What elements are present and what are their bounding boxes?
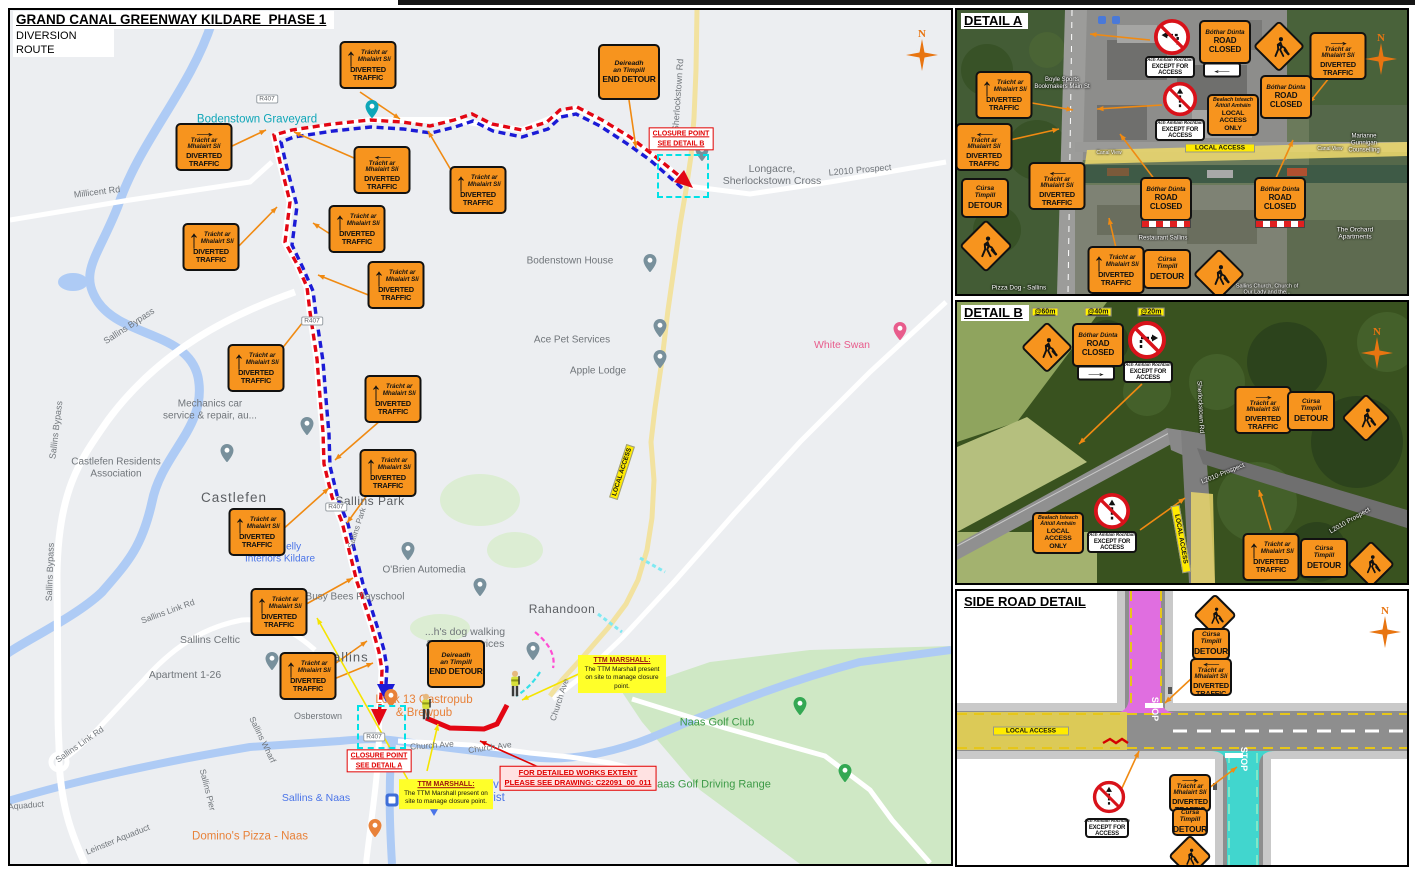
compass-icon: N — [1364, 31, 1398, 77]
diverted-sign: ↑Trácht ar Mhalairt SlíDIVERTED TRAFFIC — [976, 71, 1033, 119]
aerial-label: Sherlockstown Rd — [1195, 381, 1205, 434]
left-arrow-icon: ← — [1198, 657, 1225, 668]
up-arrow-icon: ↑ — [345, 48, 357, 67]
end-detour-sign: Deireadh an TimpillEND DETOUR — [598, 44, 660, 100]
left-arrow-icon: ← — [971, 127, 998, 138]
place-label: Busy Bees Playschool — [306, 591, 405, 603]
local-access-only-sign: Bealach Isteach Áitiúil AmháinLOCAL ACCE… — [1207, 94, 1259, 136]
roadworks-sign — [1201, 256, 1234, 289]
ttm-marshal-icon — [508, 670, 523, 698]
closure-point-b-box — [657, 154, 709, 198]
local-access-only-sign: Bealach Isteach Áitiúil AmháinLOCAL ACCE… — [1032, 512, 1084, 554]
right-arrow-icon: → — [1250, 390, 1277, 401]
closure-point-a-box — [357, 705, 406, 749]
place-label: Sallins Link Rd — [140, 598, 196, 626]
diverted-sign: ↑Trácht ar Mhalairt SlíDIVERTED TRAFFIC — [1243, 533, 1300, 581]
distance-label: @40m — [1085, 308, 1112, 317]
diverted-sign: ↑Trácht ar Mhalairt SlíDIVERTED TRAFFIC — [450, 166, 507, 214]
compass-icon: N — [1360, 325, 1394, 371]
except-for-access-sign: Ach Amháin RochtainEXCEPT FOR ACCESS — [1145, 56, 1195, 78]
place-label: Sallins Wharf — [247, 715, 278, 764]
traffic-management-drawing: GRAND CANAL GREENWAY KILDARE_PHASE 1 DIV… — [0, 0, 1415, 874]
place-label: Church Ave — [549, 678, 572, 723]
ttm-marshall-note: TTM MARSHALL:The TTM Marshall present on… — [399, 779, 493, 809]
roadworks-sign — [1348, 400, 1379, 431]
roadworks-icon — [1168, 834, 1211, 867]
roadworks-sign — [1261, 28, 1294, 61]
detour-sign: Cúrsa TimpillDETOUR — [1143, 249, 1191, 289]
up-arrow-icon: ↑ — [188, 230, 200, 249]
up-arrow-icon: ↑ — [234, 515, 246, 534]
local-access-label: LOCAL ACCESS — [609, 444, 635, 500]
place-label: Church Ave — [410, 740, 454, 753]
local-access-label: LOCAL ACCESS — [1171, 505, 1192, 574]
end-detour-sign: Deireadh an TimpillEND DETOUR — [427, 640, 485, 688]
barrier-icon — [1141, 220, 1191, 228]
roadworks-sign — [967, 227, 1001, 261]
diverted-sign: ↑Trácht ar Mhalairt SlíDIVERTED TRAFFIC — [251, 588, 308, 636]
ttm-marshal-icon — [419, 693, 434, 721]
roadworks-sign — [1029, 329, 1062, 362]
detour-sign: Cúrsa TimpillDETOUR — [961, 178, 1009, 218]
detail-a-panel: DETAIL A Boyle Sports Bookmakers Main St… — [955, 8, 1409, 296]
roadworks-icon — [959, 219, 1013, 273]
no-left-turn-sign — [1153, 18, 1191, 56]
road-badge: R407 — [256, 95, 278, 104]
roadworks-icon — [1347, 540, 1395, 585]
aerial-label: Canal View — [1317, 147, 1342, 153]
place-label: Longacre, Sherlockstown Cross — [723, 163, 822, 187]
side-road-panel: SIDE ROAD DETAIL Cúrsa TimpillDETOUR←Trá… — [955, 589, 1409, 867]
side-road-title: SIDE ROAD DETAIL — [961, 594, 1092, 610]
place-label: Millicent Rd — [73, 184, 120, 200]
place-label: Sherlockstown Rd — [670, 58, 685, 131]
place-label: Sallins Bypass — [47, 400, 64, 459]
roadworks-icon — [1341, 393, 1391, 443]
one-way-sign: → — [1077, 366, 1115, 381]
title-block: GRAND CANAL GREENWAY KILDARE_PHASE 1 DIV… — [13, 11, 334, 57]
aerial-label: The Orchard Apartments — [1329, 227, 1381, 242]
place-label: Apartment 1-26 — [149, 669, 221, 681]
aerial-label: Canal View — [1096, 151, 1121, 157]
detail-b-panel: DETAIL B Sherlockstown RdL2010-ProspectL… — [955, 300, 1409, 585]
main-map-panel: GRAND CANAL GREENWAY KILDARE_PHASE 1 DIV… — [8, 8, 953, 866]
diverted-sign: →Trácht ar Mhalairt SlíDIVERTED TRAFFIC — [1235, 386, 1292, 434]
place-label: Rahandoon — [529, 603, 596, 617]
diverted-sign: ↑Trácht ar Mhalairt SlíDIVERTED TRAFFIC — [183, 223, 240, 271]
right-arrow-icon: → — [1325, 36, 1352, 47]
left-arrow-icon: ← — [369, 150, 396, 161]
map-pin — [644, 254, 657, 272]
local-access-label: LOCAL ACCESS — [993, 727, 1069, 736]
except-for-access-sign: Ach Amháin RochtainEXCEPT FOR ACCESS — [1087, 531, 1137, 553]
except-for-access-sign: Ach Amháin RochtainEXCEPT FOR ACCESS — [1155, 119, 1205, 141]
up-arrow-icon: ↑ — [233, 351, 245, 370]
up-arrow-icon: ↑ — [285, 659, 297, 678]
map-pin — [221, 444, 234, 462]
aerial-label: L2010-Prospect — [1200, 462, 1245, 486]
diverted-sign: ↑Trácht ar Mhalairt SlíDIVERTED TRAFFIC — [360, 449, 417, 497]
place-label: Naas Golf Driving Range — [649, 779, 771, 792]
road-badge: R407 — [363, 733, 385, 742]
diverted-sign: ↑Trácht ar Mhalairt SlíDIVERTED TRAFFIC — [329, 205, 386, 253]
one-way-sign: ← — [1203, 63, 1241, 78]
place-label: Sallins Link Rd — [54, 725, 106, 765]
map-pin — [402, 542, 415, 560]
roadworks-icon — [1021, 321, 1073, 373]
no-right-turn-sign — [1127, 320, 1167, 360]
diverted-sign: ↑Trácht ar Mhalairt SlíDIVERTED TRAFFIC — [365, 375, 422, 423]
map-pin — [839, 764, 852, 782]
place-label: Sallins Pier — [197, 768, 217, 812]
map-pin — [301, 417, 314, 435]
diverted-sign: →Trácht ar Mhalairt SlíDIVERTED TRAFFIC — [176, 123, 233, 171]
map-pin — [894, 322, 907, 340]
detour-sign: Cúrsa TimpillDETOUR — [1287, 391, 1335, 431]
ttm-marshall-note: TTM MARSHALL:The TTM Marshall present on… — [578, 655, 666, 693]
roadworks-sign — [1354, 547, 1384, 577]
ttm-note-title: TTM MARSHALL: — [402, 781, 490, 790]
road-closed-sign: Bóthar DúntaROAD CLOSED — [1199, 20, 1251, 64]
place-label: Castlefen Residents Association — [71, 457, 161, 480]
no-straight-ahead-sign — [1093, 492, 1131, 530]
diverted-sign: ↑Trácht ar Mhalairt SlíDIVERTED TRAFFIC — [229, 508, 286, 556]
place-label: Mechanics car service & repair, au... — [163, 399, 257, 422]
diverted-sign: ↑Trácht ar Mhalairt SlíDIVERTED TRAFFIC — [280, 652, 337, 700]
road-badge: R407 — [301, 317, 323, 326]
place-label: Sallins Bypass — [102, 306, 157, 347]
road-closed-sign: Bóthar DúntaROAD CLOSED — [1260, 75, 1312, 119]
up-arrow-icon: ↑ — [370, 382, 382, 401]
detail-b-title: DETAIL B — [961, 305, 1029, 321]
place-label: Ace Pet Services — [534, 334, 610, 346]
detour-sign: Cúrsa TimpillDETOUR — [1300, 538, 1348, 578]
svg-text:N: N — [1373, 326, 1381, 338]
works-extent-note: FOR DETAILED WORKS EXTENT PLEASE SEE DRA… — [500, 766, 657, 791]
road-closed-sign: Bóthar DúntaROAD CLOSED — [1254, 177, 1306, 221]
local-access-label: LOCAL ACCESS — [1185, 144, 1255, 153]
svg-text:N: N — [1381, 605, 1389, 617]
place-label: Sallins Bypass — [44, 543, 56, 602]
no-straight-ahead-sign — [1162, 81, 1198, 117]
aerial-label: Sallins Church, Church of Our Lady and t… — [1236, 284, 1298, 296]
ttm-note-body: The TTM Marshall present on site to mana… — [404, 790, 488, 805]
diverted-sign: →Trácht ar Mhalairt SlíDIVERTED TRAFFIC — [1310, 32, 1367, 80]
place-label: L2010 Prospect — [828, 162, 892, 178]
up-arrow-icon: ↑ — [256, 595, 268, 614]
right-arrow-icon: → — [1177, 773, 1204, 784]
right-arrow-icon: → — [191, 127, 218, 138]
train-station-icon — [386, 794, 399, 807]
svg-text:N: N — [918, 28, 926, 40]
aerial-label: Marianne Gunnigan Counselling — [1343, 134, 1386, 155]
drawing-title: GRAND CANAL GREENWAY KILDARE_PHASE 1 — [13, 11, 334, 29]
map-pin — [369, 819, 382, 837]
aerial-label: Restaurant Sallins — [1139, 236, 1188, 243]
map-pin — [527, 642, 540, 660]
sheet-edge — [398, 0, 1415, 5]
no-straight-ahead-sign — [1092, 780, 1126, 814]
diverted-sign: ↑Trácht ar Mhalairt SlíDIVERTED TRAFFIC — [228, 344, 285, 392]
compass-icon: N — [1368, 604, 1402, 650]
map-pin — [654, 350, 667, 368]
diverted-sign: →Trácht ar Mhalairt SlíDIVERTED TRAFFIC — [1169, 774, 1211, 812]
map-pin — [654, 319, 667, 337]
diverted-sign: ←Trácht ar Mhalairt SlíDIVERTED TRAFFIC — [354, 146, 411, 194]
closure-point-b-label: CLOSURE POINT SEE DETAIL B — [649, 127, 714, 150]
aerial-label: L2010 Prospect — [1328, 506, 1371, 535]
roadworks-sign — [1175, 841, 1202, 867]
stop-marking: STOP — [1239, 747, 1249, 771]
svg-text:N: N — [1377, 32, 1385, 44]
place-label: Sallins Celtic — [180, 634, 240, 646]
road-badge: R407 — [325, 503, 347, 512]
place-label: Castlefen — [201, 490, 267, 506]
ttm-note-body: The TTM Marshall present on site to mana… — [585, 666, 660, 690]
place-label: Apple Lodge — [570, 365, 626, 377]
up-arrow-icon: ↑ — [1248, 540, 1260, 559]
place-label: Aquaduct — [8, 800, 44, 813]
place-label: Leinster Aquaduct — [85, 823, 152, 858]
place-label: Sallins Park — [346, 506, 368, 549]
stop-marking: STOP — [1150, 697, 1160, 721]
place-label: Sallins & Naas — [282, 792, 350, 804]
place-label: Naas Golf Club — [680, 717, 755, 730]
right-arrow-icon: → — [1083, 368, 1108, 378]
roadworks-icon — [1193, 248, 1245, 296]
place-label: Bodenstown House — [527, 255, 614, 267]
map-pin — [794, 697, 807, 715]
ttm-note-title: TTM MARSHALL: — [581, 657, 663, 666]
up-arrow-icon: ↑ — [334, 212, 346, 231]
up-arrow-icon: ↑ — [373, 268, 385, 287]
place-label: Domino's Pizza - Naas — [192, 830, 308, 843]
compass-icon: N — [905, 27, 939, 73]
distance-label: @60m — [1032, 308, 1059, 317]
except-for-access-sign: Ach Amháin RochtainEXCEPT FOR ACCESS — [1085, 818, 1129, 838]
distance-label: @20m — [1138, 308, 1165, 317]
diverted-sign: ↑Trácht ar Mhalairt SlíDIVERTED TRAFFIC — [340, 41, 397, 89]
aerial-label: Boyle Sports Bookmakers Main St — [1034, 77, 1089, 91]
detour-sign: Cúrsa TimpillDETOUR — [1172, 808, 1208, 836]
subtitle-route: ROUTE — [13, 43, 114, 57]
diverted-sign: ←Trácht ar Mhalairt SlíDIVERTED TRAFFIC — [956, 123, 1013, 171]
left-arrow-icon: ← — [1044, 166, 1071, 177]
diverted-sign: ↑Trácht ar Mhalairt SlíDIVERTED TRAFFIC — [1088, 246, 1145, 294]
place-label: Church Ave — [468, 740, 513, 756]
map-pin — [266, 652, 279, 670]
place-label: O'Brien Automedia — [382, 564, 465, 576]
closure-point-a-label: CLOSURE POINT SEE DETAIL A — [347, 749, 412, 772]
diverted-sign: ←Trácht ar Mhalairt SlíDIVERTED TRAFFIC — [1029, 162, 1086, 210]
up-arrow-icon: ↑ — [1093, 253, 1105, 272]
map-pin — [474, 578, 487, 596]
up-arrow-icon: ↑ — [981, 78, 993, 97]
map-pin — [366, 100, 379, 118]
place-label: Osberstown — [294, 711, 342, 721]
road-closed-sign: Bóthar DúntaROAD CLOSED — [1072, 323, 1124, 367]
up-arrow-icon: ↑ — [455, 173, 467, 192]
roadworks-sign — [1200, 600, 1227, 627]
road-closed-sign: Bóthar DúntaROAD CLOSED — [1140, 177, 1192, 221]
roadworks-icon — [1253, 20, 1305, 72]
barrier-icon — [1255, 220, 1305, 228]
subtitle-diversion: DIVERSION — [13, 29, 114, 43]
left-arrow-icon: ← — [1209, 65, 1234, 75]
aerial-label: Pizza Dog - Sallins — [992, 284, 1047, 291]
diverted-sign: ←Trácht ar Mhalairt SlíDIVERTED TRAFFIC — [1190, 658, 1232, 696]
detail-a-title: DETAIL A — [961, 13, 1028, 29]
up-arrow-icon: ↑ — [365, 456, 377, 475]
diverted-sign: ↑Trácht ar Mhalairt SlíDIVERTED TRAFFIC — [368, 261, 425, 309]
except-for-access-sign: Ach Amháin RochtainEXCEPT FOR ACCESS — [1123, 361, 1173, 383]
place-label: White Swan — [814, 339, 870, 351]
